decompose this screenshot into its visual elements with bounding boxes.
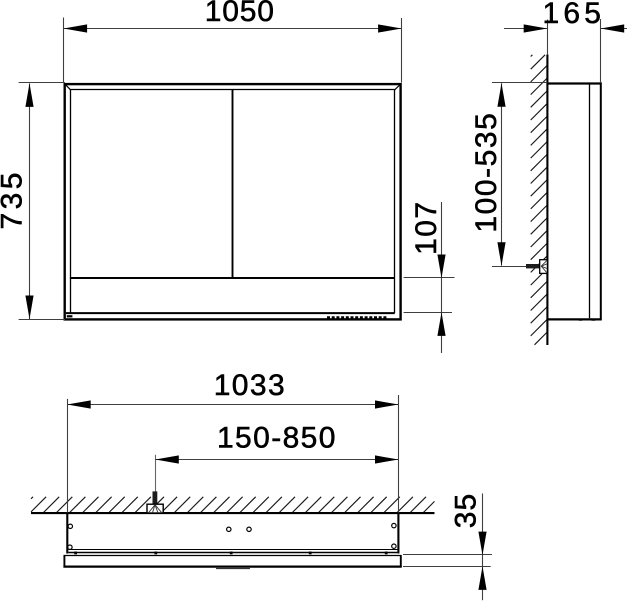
svg-text:35: 35 [449, 494, 482, 529]
svg-text:735: 735 [0, 173, 28, 230]
svg-text:107: 107 [410, 202, 443, 255]
svg-text:1033: 1033 [214, 369, 285, 402]
svg-text:1050: 1050 [205, 0, 274, 28]
svg-text:165: 165 [542, 0, 601, 30]
